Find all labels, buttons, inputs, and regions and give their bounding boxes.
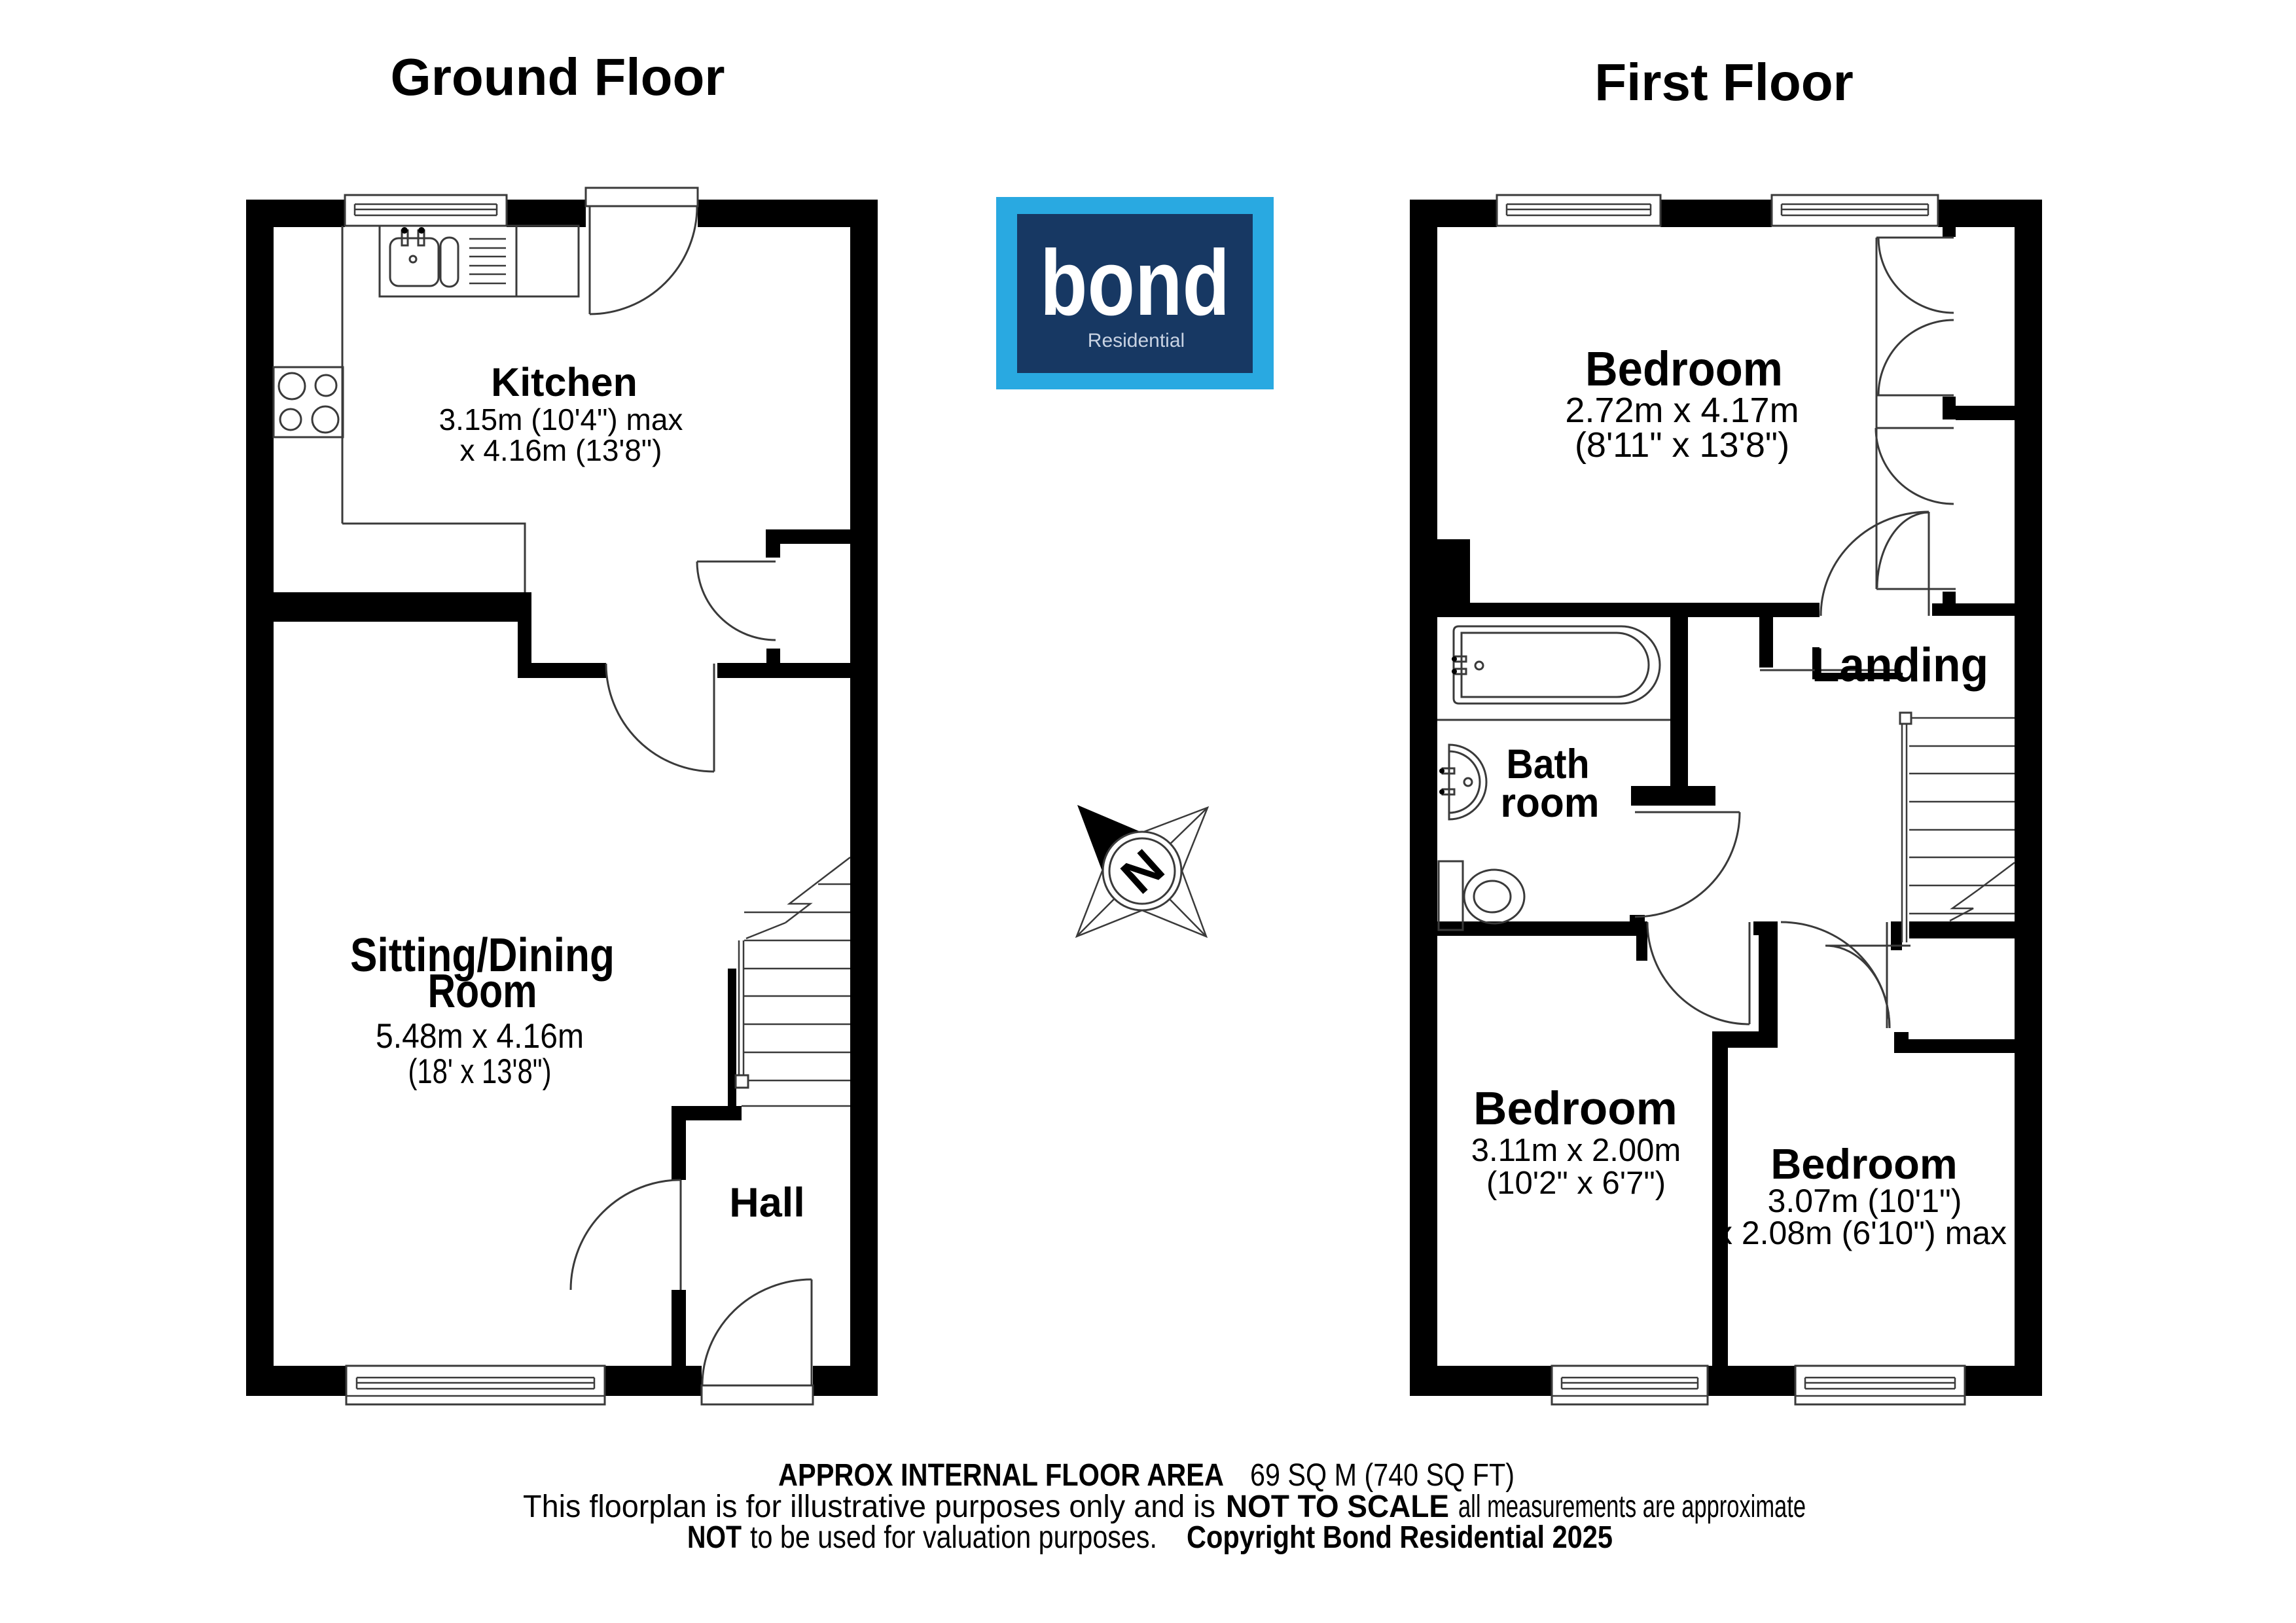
- svg-text:NOT: NOT: [687, 1520, 742, 1555]
- svg-text:First Floor: First Floor: [1594, 53, 1854, 111]
- svg-text:room: room: [1501, 780, 1600, 826]
- svg-text:Ground Floor: Ground Floor: [390, 48, 725, 106]
- svg-text:3.07m (10'1"): 3.07m (10'1"): [1768, 1183, 1962, 1219]
- svg-text:Residential: Residential: [1088, 330, 1185, 351]
- svg-text:5.48m x 4.16m: 5.48m x 4.16m: [376, 1017, 584, 1056]
- svg-text:(8'11" x 13'8"): (8'11" x 13'8"): [1575, 425, 1789, 465]
- svg-text:Bedroom: Bedroom: [1585, 342, 1783, 396]
- svg-text:Hall: Hall: [729, 1180, 805, 1226]
- svg-text:(18' x 13'8"): (18' x 13'8"): [408, 1052, 552, 1091]
- svg-text:bond: bond: [1040, 231, 1230, 335]
- svg-text:69 SQ M (740 SQ FT): 69 SQ M (740 SQ FT): [1250, 1458, 1515, 1493]
- svg-text:to be used for valuation purpo: to be used for valuation purposes.: [750, 1520, 1157, 1555]
- svg-text:all measurements are approxima: all measurements are approximate: [1458, 1489, 1806, 1524]
- svg-text:Kitchen: Kitchen: [491, 360, 637, 404]
- svg-text:2.72m x 4.17m: 2.72m x 4.17m: [1565, 391, 1799, 430]
- svg-text:Bedroom: Bedroom: [1770, 1140, 1957, 1188]
- svg-text:(10'2" x 6'7"): (10'2" x 6'7"): [1486, 1166, 1666, 1201]
- svg-text:x 2.08m (6'10") max: x 2.08m (6'10") max: [1716, 1215, 2007, 1251]
- svg-text:3.15m (10'4") max: 3.15m (10'4") max: [439, 402, 683, 437]
- svg-text:This floorplan is for illustra: This floorplan is for illustrative purpo…: [523, 1489, 1215, 1524]
- svg-text:Bedroom: Bedroom: [1473, 1083, 1677, 1135]
- svg-text:x 4.16m (13'8"): x 4.16m (13'8"): [460, 433, 662, 467]
- svg-text:Room: Room: [428, 965, 537, 1018]
- svg-text:Landing: Landing: [1812, 639, 1988, 692]
- svg-text:3.11m x 2.00m: 3.11m x 2.00m: [1471, 1133, 1681, 1168]
- svg-text:NOT TO SCALE: NOT TO SCALE: [1226, 1489, 1449, 1524]
- svg-text:APPROX INTERNAL FLOOR AREA: APPROX INTERNAL FLOOR AREA: [778, 1458, 1224, 1493]
- svg-text:Copyright Bond Residential 202: Copyright Bond Residential 2025: [1187, 1520, 1613, 1555]
